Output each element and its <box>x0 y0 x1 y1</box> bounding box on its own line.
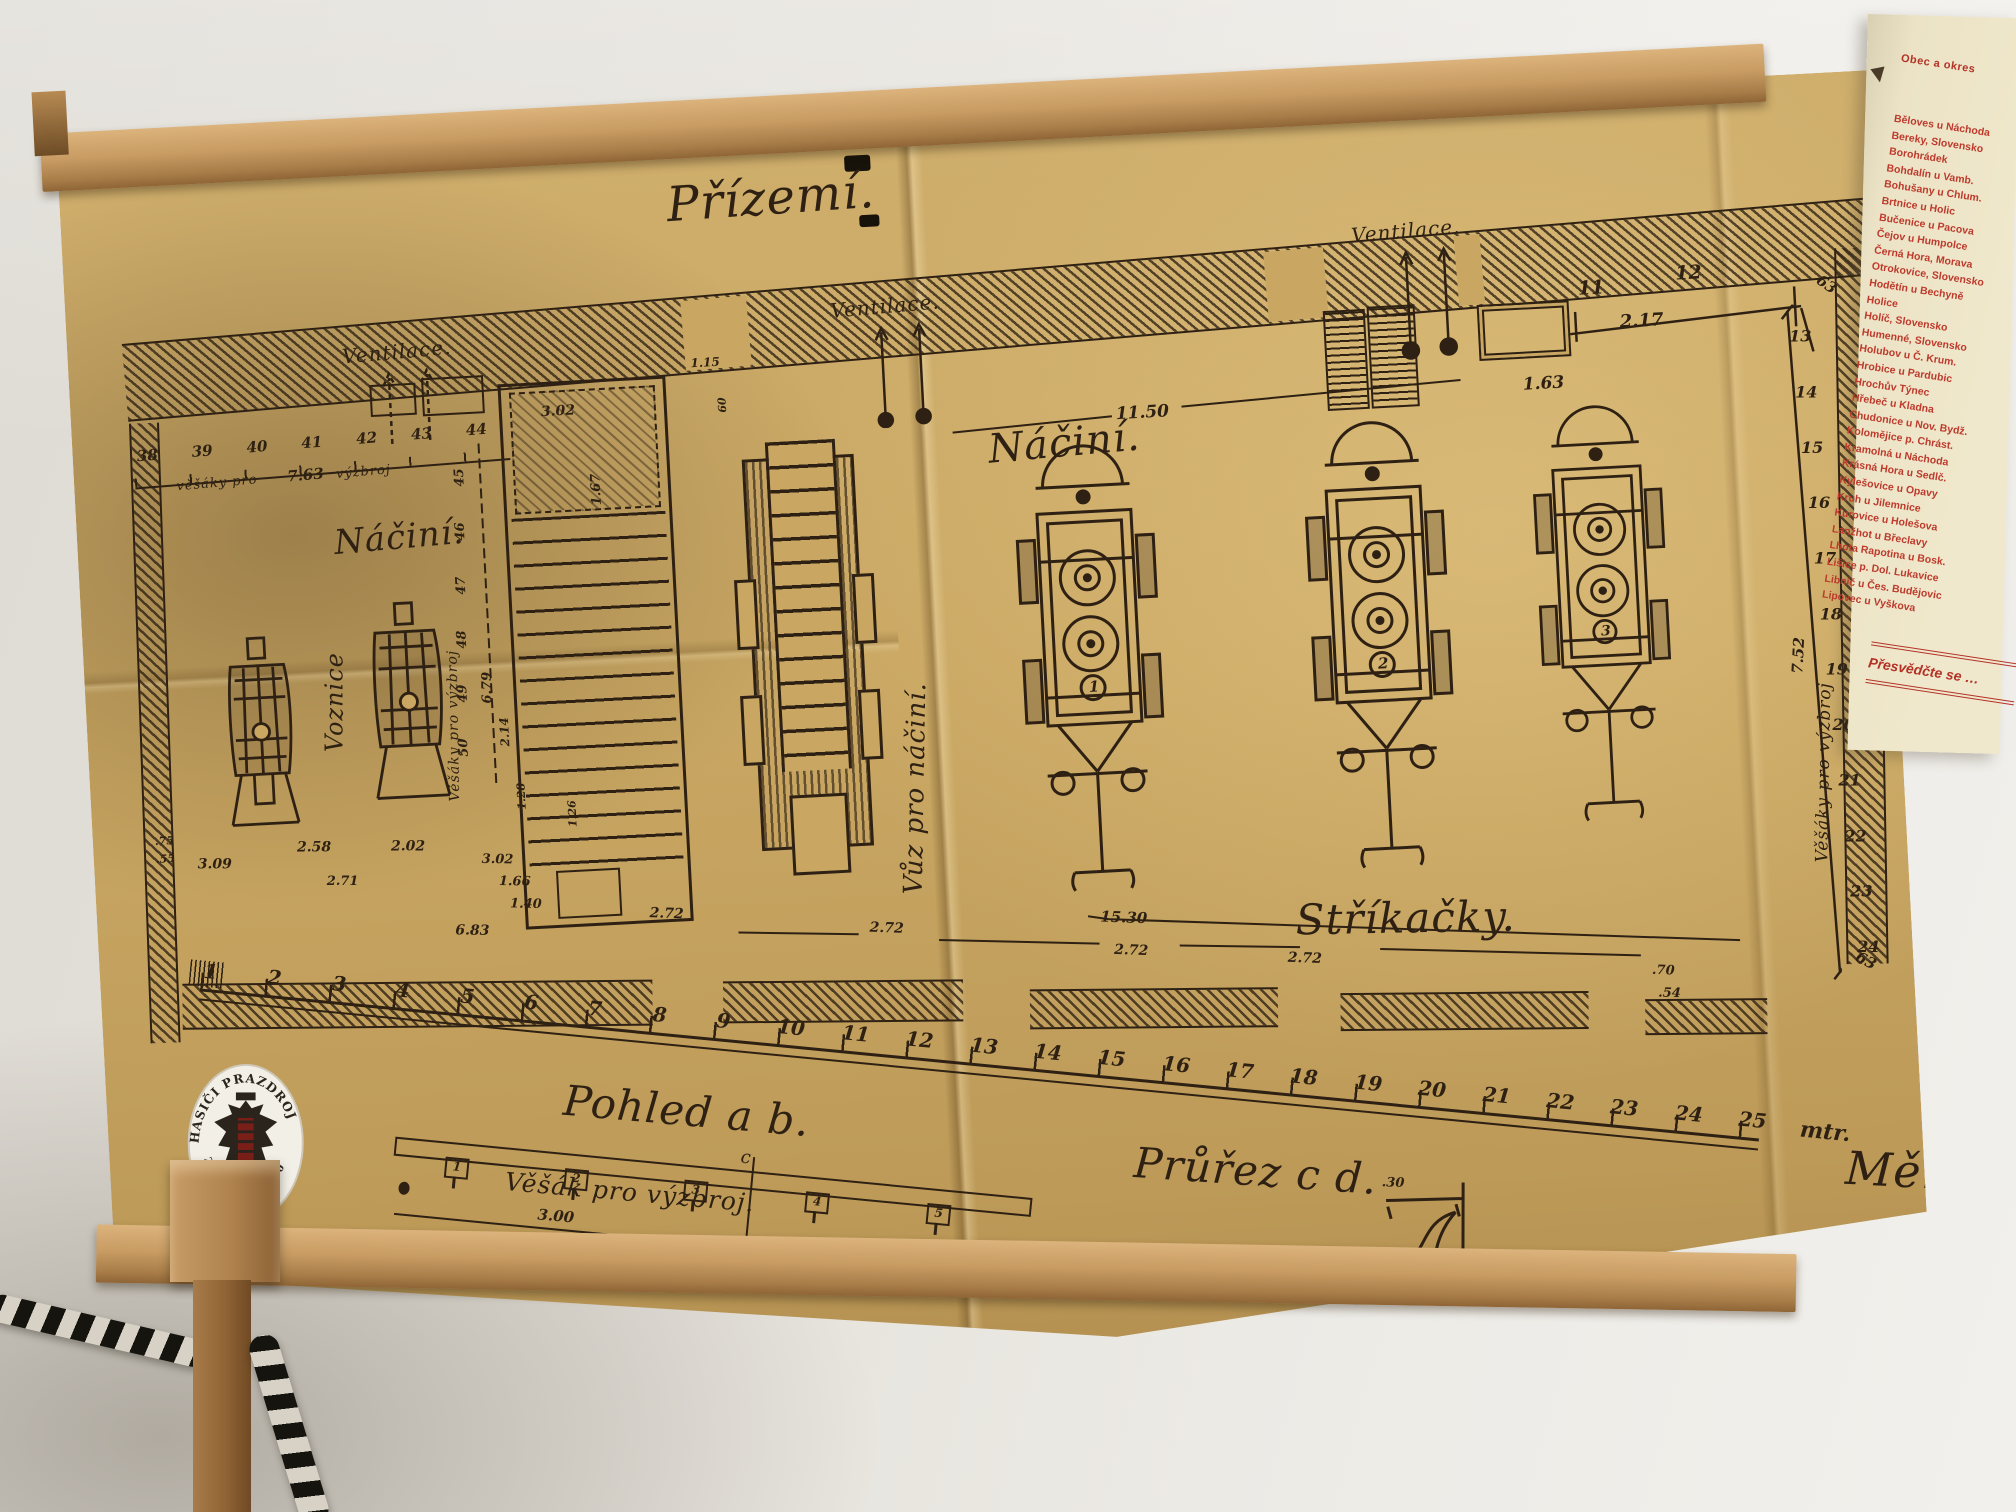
ruler-number: 25 <box>1738 1107 1768 1134</box>
hook-number: 43 <box>410 424 432 444</box>
dimension-label: 45 <box>452 468 468 487</box>
script-label: Náčiní. <box>332 512 466 563</box>
staircase-plan <box>497 376 693 930</box>
hook <box>398 1181 410 1195</box>
fire-engine: 3 <box>1514 399 1695 844</box>
script-label: Vůz pro náčiní. <box>899 682 933 895</box>
poster-footer: Přesvědčte se … <box>1865 641 2016 705</box>
numbered-hook: 4 <box>804 1191 830 1214</box>
dimension-label: 1.67 <box>588 473 605 505</box>
dimension-label: .75 <box>155 834 175 848</box>
dimension-label: 47 <box>453 576 469 595</box>
wall-pier <box>1645 998 1767 1035</box>
dimension-label: 2.17 <box>1619 309 1664 332</box>
wall-section-left <box>129 423 181 1044</box>
dimension-label: 2.72 <box>649 905 684 922</box>
ruler-number: 17 <box>1225 1057 1255 1084</box>
ruler-number: 24 <box>1674 1100 1704 1127</box>
poster-footer-text: Přesvědčte se … <box>1867 654 1980 687</box>
ruler-number: 16 <box>1161 1051 1191 1078</box>
equipment-wagon <box>742 454 874 851</box>
pin-icon <box>1870 66 1884 82</box>
hook-number: 40 <box>246 437 268 457</box>
dimension-label: 1.63 <box>1522 373 1564 395</box>
dimension-label: 3.00 <box>537 1205 575 1226</box>
wall-box <box>369 383 417 417</box>
wooden-rail-endcap <box>31 91 68 157</box>
dimension-label: 1.15 <box>690 355 720 371</box>
ruler-number: 9 <box>715 1008 731 1033</box>
dimension-label: 21 <box>1838 771 1860 790</box>
dimension-label: 2.14 <box>497 717 513 747</box>
poster-header: Obec a okres <box>1900 52 1976 75</box>
dimension-label: 3.02 <box>482 852 514 868</box>
ruler-number: 14 <box>1033 1039 1063 1066</box>
dimension-label: 1.66 <box>499 874 531 890</box>
dimension-label: 7.52 <box>1788 637 1808 674</box>
ruler-number: 1 <box>203 959 219 984</box>
ruler-number: 13 <box>969 1033 999 1060</box>
ruler-number: mtr. <box>1799 1116 1852 1147</box>
water-barrel-cart <box>210 623 314 856</box>
script-label: Věšáky pro výzbroj <box>445 650 464 802</box>
dimension-label: .30 <box>1381 1175 1404 1191</box>
ruler-number: 20 <box>1417 1076 1447 1103</box>
door-opening <box>1263 247 1329 322</box>
dimension-label: 15 <box>1801 438 1823 457</box>
ruler-number: 19 <box>1353 1070 1383 1097</box>
ruler-number: 7 <box>587 996 603 1021</box>
dimension-label: 48 <box>454 630 470 649</box>
dimension-label: 2.02 <box>391 839 425 855</box>
numbered-hook: 1 <box>444 1157 470 1180</box>
ruler-number: 23 <box>1609 1094 1639 1121</box>
dimension-label: .55 <box>155 852 175 866</box>
hook-number: 42 <box>356 428 378 448</box>
dimension-label: 16 <box>1808 493 1830 512</box>
hook-number: 39 <box>191 441 213 461</box>
wall-box <box>421 375 485 416</box>
ruler-number: 8 <box>652 1002 668 1027</box>
wall-cabinet <box>1477 300 1572 361</box>
fire-engine: 1 <box>995 438 1189 916</box>
script-label: Voznice <box>320 652 348 752</box>
dimension-label: 24 <box>1857 937 1879 956</box>
hook-number: 44 <box>465 420 487 440</box>
ruler-number: 21 <box>1482 1082 1512 1109</box>
engine-number: 1 <box>1085 677 1104 696</box>
script-label: Průřez c d. <box>1132 1138 1379 1204</box>
dimension-label: 2.71 <box>327 874 359 889</box>
ruler-number: 2 <box>266 965 282 990</box>
hook-number: 41 <box>301 433 323 453</box>
script-label: Přízemí. <box>665 163 877 233</box>
ruler-number: 6 <box>523 990 539 1015</box>
dimension-label: 23 <box>1850 881 1872 900</box>
photo-of-blueprint: 1 <box>0 0 2016 1512</box>
dimension-label: 18 <box>1820 604 1842 623</box>
dimension-label: 13 <box>1789 327 1811 346</box>
dimension-label: 14 <box>1795 382 1817 401</box>
dimension-label: 12 <box>1675 261 1703 284</box>
ruler-number: 22 <box>1546 1088 1576 1115</box>
engine-number: 3 <box>1597 622 1615 640</box>
engine-number: 2 <box>1374 654 1393 673</box>
dimension-label: 2.58 <box>297 840 331 856</box>
script-label: Věšáky pro výzbroj <box>1812 682 1835 863</box>
ventilation-arrows <box>859 315 955 430</box>
dimension-label: 1.28 <box>514 783 528 810</box>
dimension-label: 6.83 <box>455 922 489 939</box>
blueprint-board: 1 <box>40 43 1953 1478</box>
dimension-label: 22 <box>1844 827 1866 846</box>
ruler-number: 18 <box>1289 1063 1319 1090</box>
red-text-poster: Obec a okres Běloves u NáchodaBereky, Sl… <box>1847 14 2016 754</box>
wooden-post-shaft <box>193 1280 251 1512</box>
ruler-number: 3 <box>331 971 347 996</box>
dimension-label: 7.63 <box>286 464 324 485</box>
ruler-number: 4 <box>395 977 411 1002</box>
script-label: Pohled a b. <box>561 1076 811 1146</box>
dimension-lines-bays <box>737 858 1742 1040</box>
fire-engine: 2 <box>1285 414 1479 892</box>
dimension-label: 3.02 <box>541 402 576 420</box>
hook-number: 38 <box>136 446 158 466</box>
ruler-number: 5 <box>460 984 476 1009</box>
dimension-label: 19 <box>1826 659 1848 678</box>
dimension-label: 3.09 <box>198 857 232 873</box>
wooden-post-head <box>170 1160 280 1282</box>
numbered-hook: 5 <box>926 1203 952 1226</box>
dimension-label: 1.40 <box>510 896 542 912</box>
script-label: c <box>740 1147 753 1169</box>
ruler-number: 15 <box>1097 1045 1127 1072</box>
dimension-label: 6.79 <box>480 672 496 704</box>
dimension-label: 60 <box>715 397 729 413</box>
dimension-label: 1.26 <box>565 800 579 827</box>
dimension-label: 11 <box>1577 276 1605 299</box>
script-label: Měř <box>1844 1141 1946 1200</box>
